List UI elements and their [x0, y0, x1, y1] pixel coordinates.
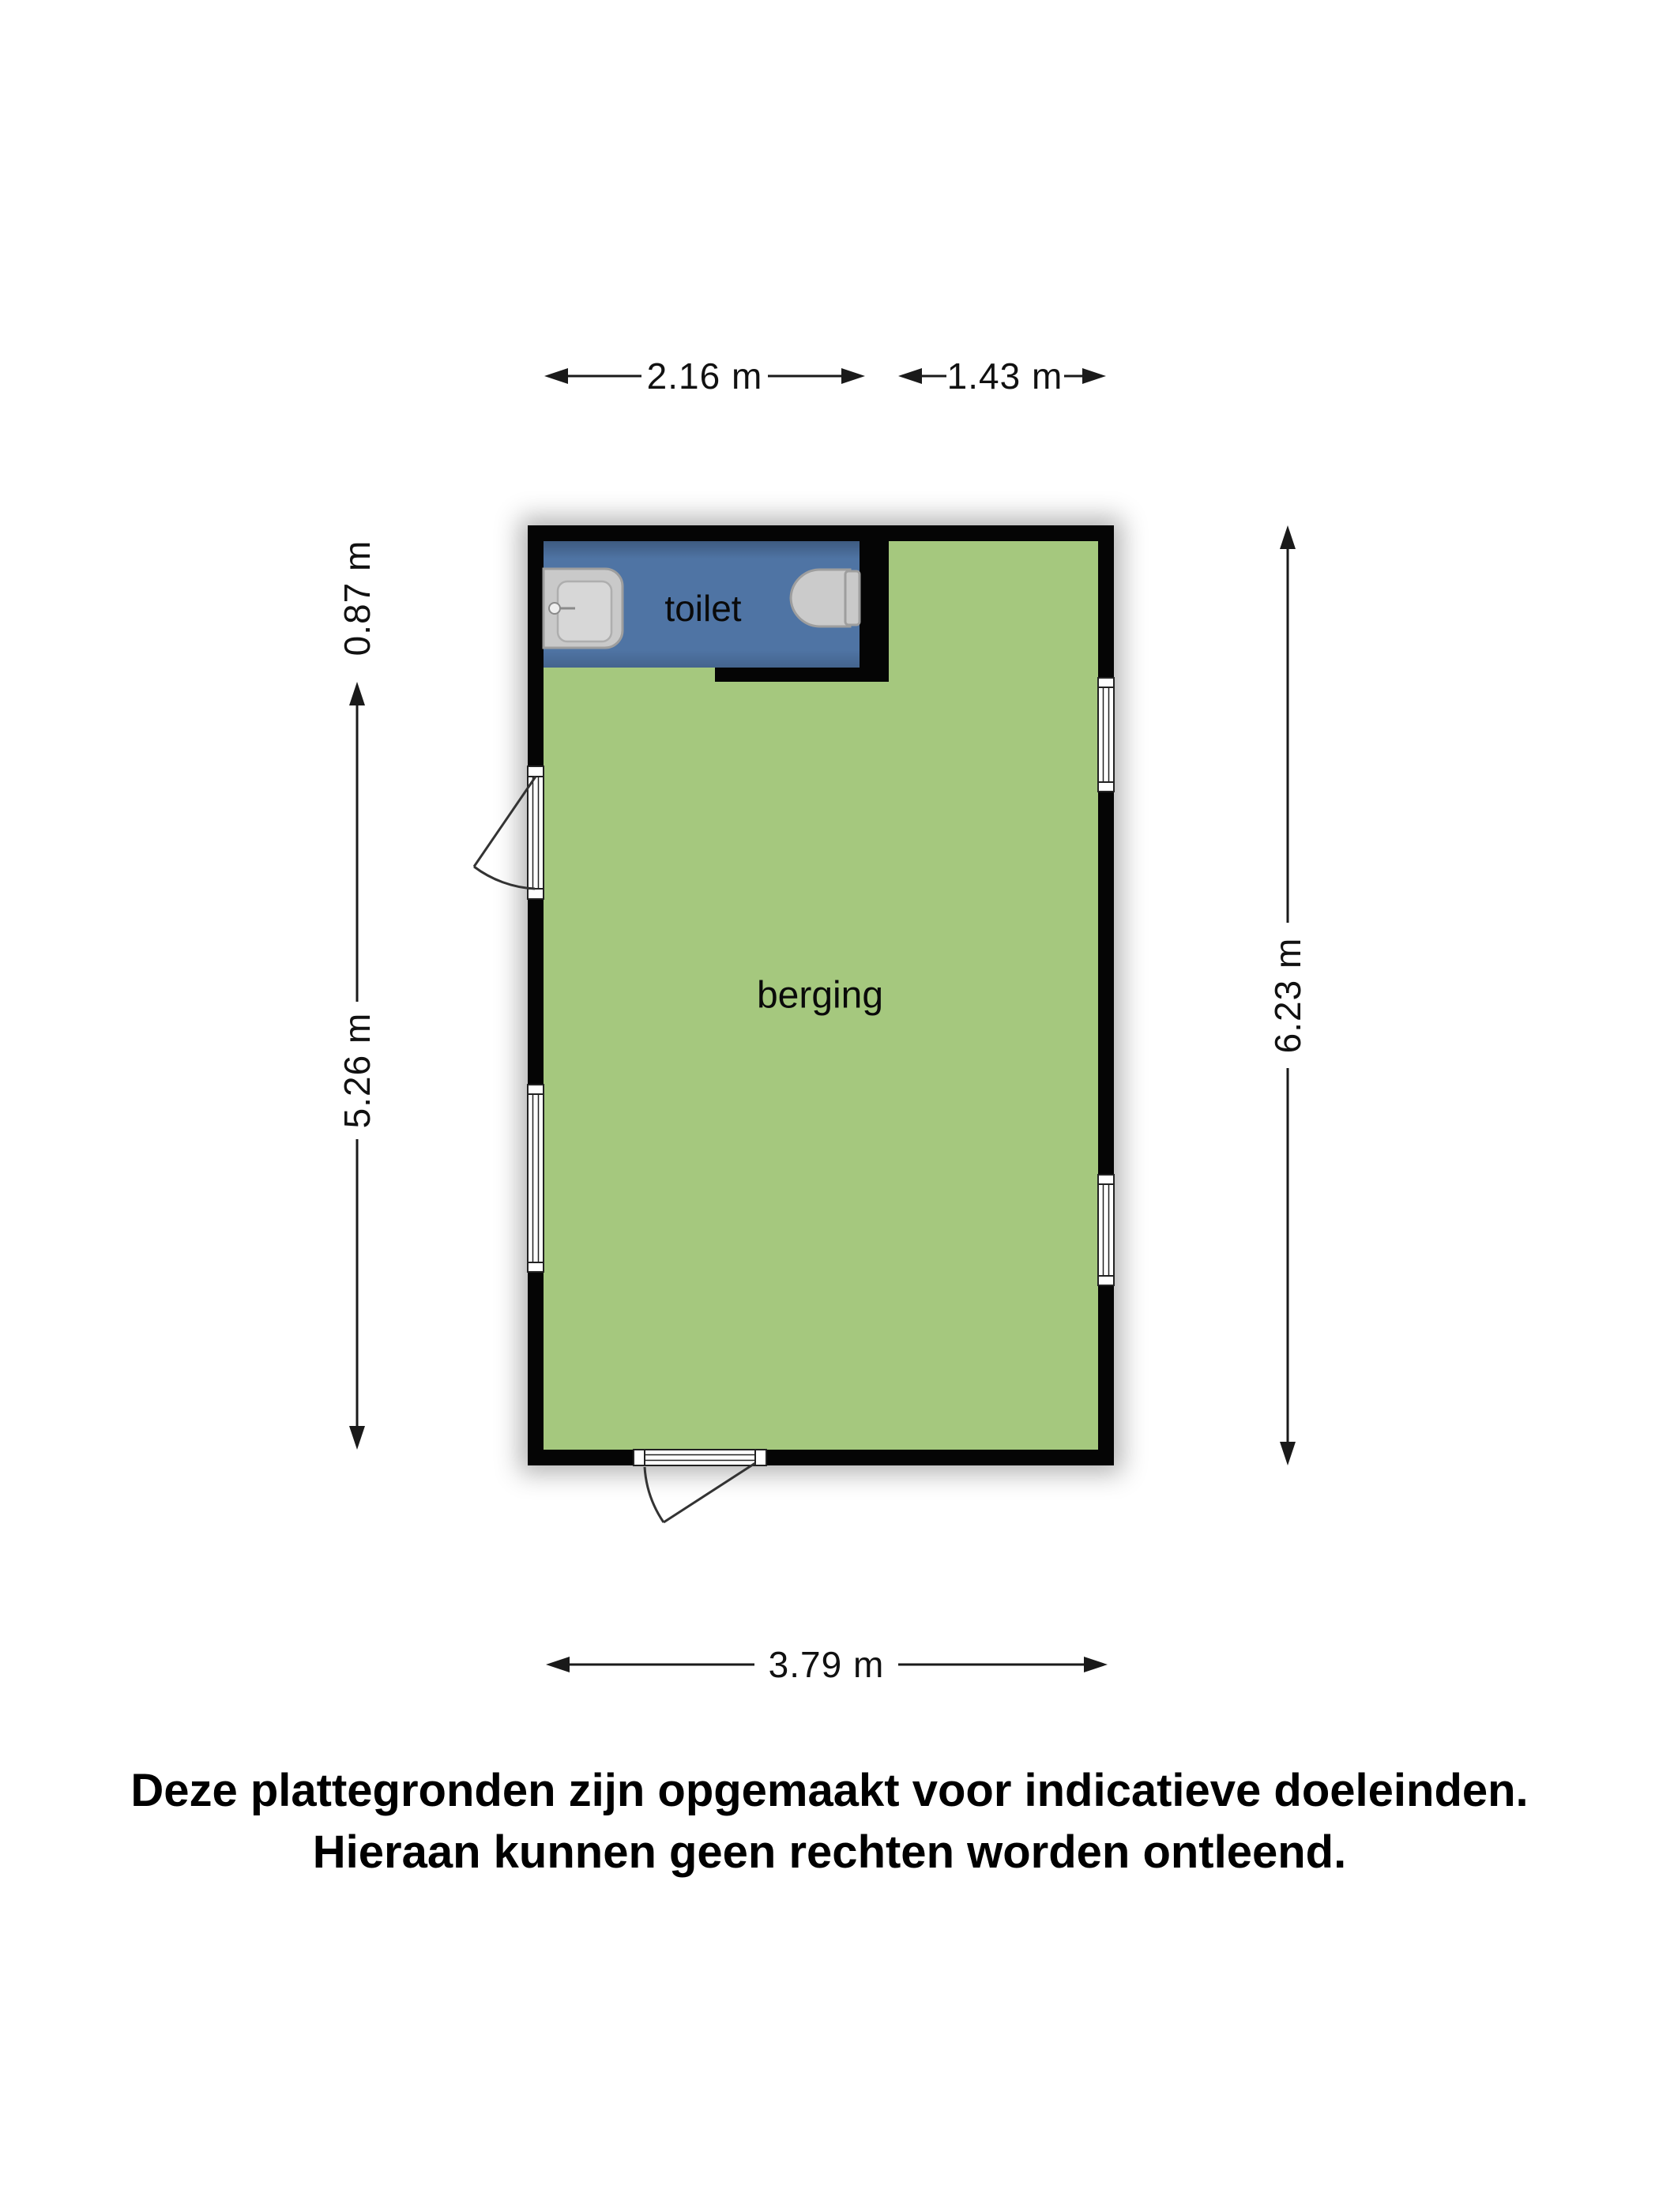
door-jamb [528, 766, 544, 777]
dimension-label-toilet-height: 0.87 m [336, 540, 378, 656]
window-icon [1098, 1175, 1114, 1285]
dimension-label-berging-height: 5.26 m [336, 1013, 378, 1129]
wall-left-upper [528, 525, 544, 766]
disclaimer-text: Deze plattegronden zijn opgemaakt voor i… [0, 1760, 1659, 1883]
wall-left-lower [528, 1272, 544, 1465]
dimension-label-total-height: 6.23 m [1266, 938, 1309, 1054]
sink-icon [544, 569, 623, 648]
door-swing-arc [645, 1467, 664, 1522]
door-jamb [755, 1450, 766, 1465]
door-leaf [664, 1463, 755, 1522]
wall-bottom-left-segment [528, 1450, 634, 1465]
room-label-toilet: toilet [664, 587, 741, 630]
disclaimer-line-1: Deze plattegronden zijn opgemaakt voor i… [0, 1760, 1659, 1822]
dimension-label-berging-top-width: 1.43 m [947, 355, 1063, 397]
door-jamb [634, 1450, 645, 1465]
wall-left-mid [528, 899, 544, 1085]
wall-right-mid [1098, 792, 1114, 1175]
floorplan-page: 2.16 m 1.43 m 0.87 m 5.26 m 6.23 m 3.79 … [0, 0, 1659, 2212]
door-icon [474, 766, 544, 899]
dimension-label-toilet-width: 2.16 m [647, 355, 763, 397]
toilet-icon [791, 570, 860, 626]
door-swing-arc [474, 867, 535, 889]
door-jamb [528, 889, 544, 899]
dimension-label-total-width: 3.79 m [769, 1643, 885, 1686]
window-icon [1098, 678, 1114, 792]
disclaimer-line-2: Hieraan kunnen geen rechten worden ontle… [0, 1822, 1659, 1883]
wall-toilet-right [860, 541, 889, 682]
door-icon [634, 1450, 766, 1522]
window-icon [528, 1085, 544, 1272]
wall-bottom-right-segment [766, 1450, 1114, 1465]
door-leaf [474, 777, 536, 867]
room-label-berging: berging [757, 974, 883, 1018]
wall-right-lower [1098, 1285, 1114, 1465]
wall-toilet-bottom [715, 668, 889, 682]
wall-right-upper [1098, 525, 1114, 678]
wall-top [528, 525, 1114, 541]
